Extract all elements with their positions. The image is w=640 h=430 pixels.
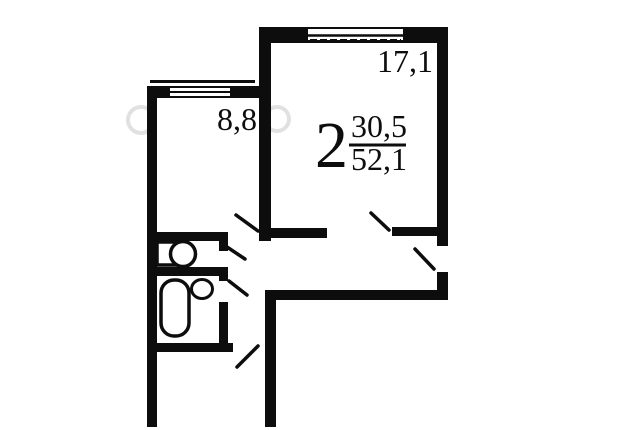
living-area-label: 30,5 [351,108,407,144]
floor-plan: 17,1 8,8 2 30,5 52,1 [0,0,640,430]
apartment-summary: 2 30,5 52,1 [315,108,407,182]
toilet-icon [157,242,196,267]
wall-wc-bath-divider [147,267,228,276]
window-icon [170,88,230,96]
sink-icon [192,280,213,299]
kitchen-area-label: 8,8 [217,101,257,137]
total-area-label: 52,1 [351,141,407,177]
wall-bath-right-stub [219,267,228,281]
window-icon [308,29,403,40]
wall-living-right-upper [437,27,448,246]
fixtures [157,242,213,337]
wall-hall-bottom [265,290,447,300]
living-room-area-label: 17,1 [377,43,433,79]
wall-living-left [259,27,271,241]
door-leaf-icon [371,213,389,230]
wall-bottom-room-right [265,290,276,427]
door-leaf-icon [415,249,434,269]
door-leaf-icon [229,281,247,295]
door-leaf-icon [237,346,258,367]
walls [147,27,448,427]
bathtub-icon [161,280,189,336]
wall-living-bottom-right [392,227,437,236]
rooms-count-label: 2 [315,109,348,182]
door-leaf-icon [236,215,258,231]
wall-living-bottom-left [259,228,327,238]
door-leaf-icon [227,247,245,259]
wall-kitchen-bottom [147,232,225,241]
floor-plan-svg: 17,1 8,8 2 30,5 52,1 [0,0,640,430]
wall-bath-bottom [147,343,233,352]
wall-thin-edge-top [150,80,255,83]
